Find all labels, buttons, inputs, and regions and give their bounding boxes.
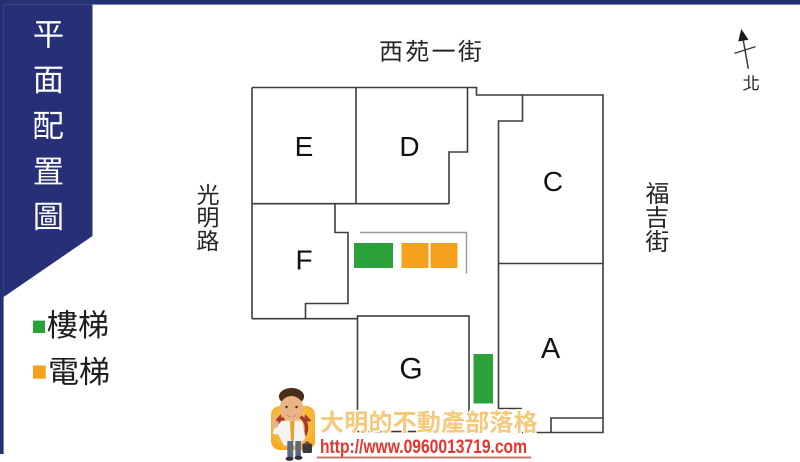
- svg-text:C: C: [543, 166, 563, 197]
- svg-text:F: F: [295, 245, 312, 276]
- svg-text:G: G: [399, 353, 422, 386]
- svg-text:D: D: [399, 131, 419, 162]
- svg-text:A: A: [541, 333, 561, 365]
- svg-text:E: E: [295, 131, 314, 162]
- svg-text:http://www.0960013719.com: http://www.0960013719.com: [320, 436, 527, 458]
